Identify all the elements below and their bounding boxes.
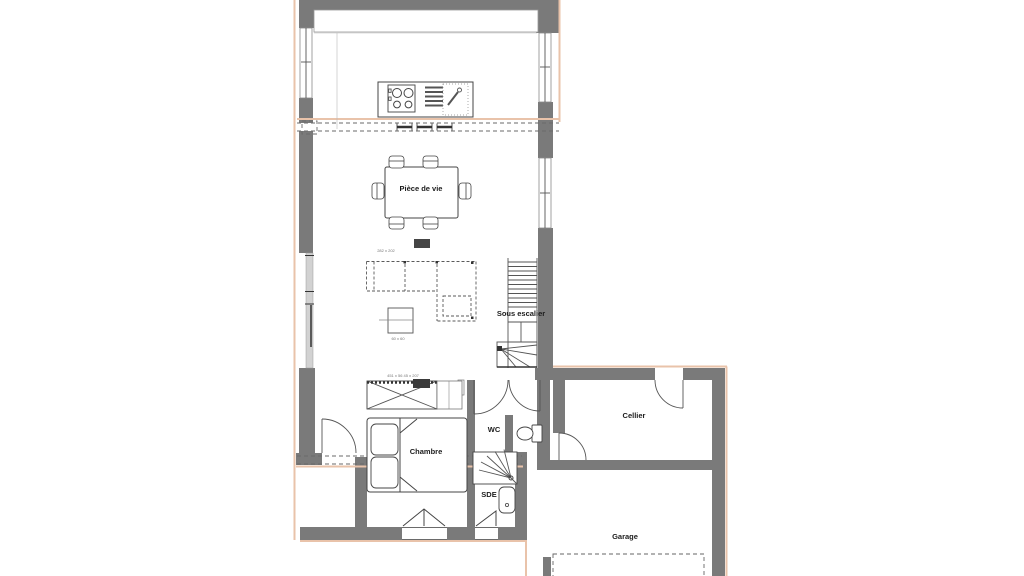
wall-segment — [447, 527, 475, 540]
room-label-garage: Garage — [612, 532, 638, 541]
wall-segment — [537, 380, 550, 460]
corner-sofa: 282 x 202 — [367, 248, 477, 321]
glazed-bay-left — [305, 253, 314, 368]
door-bedroom — [474, 380, 508, 414]
wall-segment — [543, 557, 551, 576]
wall-segment — [505, 415, 513, 452]
wall-segment — [300, 0, 558, 10]
wall-segment — [535, 368, 553, 380]
floor-plan: 282 x 202 60 x 60 451 x 56 45 x 207 — [0, 0, 1024, 576]
door-bedroom-terrace — [322, 419, 356, 453]
room-label-living: Pièce de vie — [400, 184, 443, 193]
wall-segment — [538, 102, 553, 158]
window-right-upper — [539, 33, 551, 102]
wall-segment — [536, 0, 560, 33]
wall-segment — [712, 368, 725, 576]
pillow — [371, 424, 398, 455]
sofa-dims: 282 x 202 — [377, 248, 395, 253]
wall-segment — [296, 453, 322, 465]
floor-block — [414, 239, 430, 248]
pillow — [371, 457, 398, 488]
kitchen — [314, 33, 537, 129]
room-label-wc: WC — [488, 425, 501, 434]
bay-window — [314, 10, 538, 32]
wardrobe: 451 x 56 45 x 207 — [367, 373, 462, 409]
door-cellier-exterior — [655, 380, 683, 408]
wall-segment — [299, 368, 315, 455]
wall-segment — [538, 228, 553, 380]
window-right-lower — [539, 158, 551, 228]
coffee-table: 60 x 60 — [379, 308, 413, 341]
toilet — [517, 425, 542, 442]
wall-segment — [553, 380, 565, 433]
cooktop-icon — [388, 85, 415, 112]
coffee-table-dims: 60 x 60 — [391, 336, 405, 341]
room-label-under-stairs: Sous escalier — [497, 309, 545, 318]
window-left — [300, 28, 312, 98]
wall-segment — [299, 0, 314, 28]
floor-plan-canvas: 282 x 202 60 x 60 451 x 56 45 x 207 — [0, 0, 1024, 576]
room-label-pantry: Cellier — [623, 411, 646, 420]
window-bottom-sde — [475, 511, 498, 540]
wardrobe-dark-block — [413, 379, 430, 388]
dashed-band-living — [297, 121, 559, 134]
room-label-bedroom: Chambre — [410, 447, 443, 456]
window-bottom-bedroom — [402, 509, 447, 540]
room-label-shower-room: SDE — [481, 490, 496, 499]
washbasin — [499, 487, 515, 513]
wall-segment — [553, 368, 655, 380]
wall-segment — [683, 368, 714, 380]
wall-segment — [299, 131, 313, 253]
wall-segment — [537, 460, 712, 470]
wall-segment — [300, 527, 402, 540]
garage-door-zone — [553, 554, 704, 576]
wardrobe-dims: 451 x 56 45 x 207 — [387, 373, 420, 378]
door-cellier-interior — [559, 433, 586, 460]
wall-segment — [355, 457, 367, 529]
shower — [473, 450, 517, 485]
